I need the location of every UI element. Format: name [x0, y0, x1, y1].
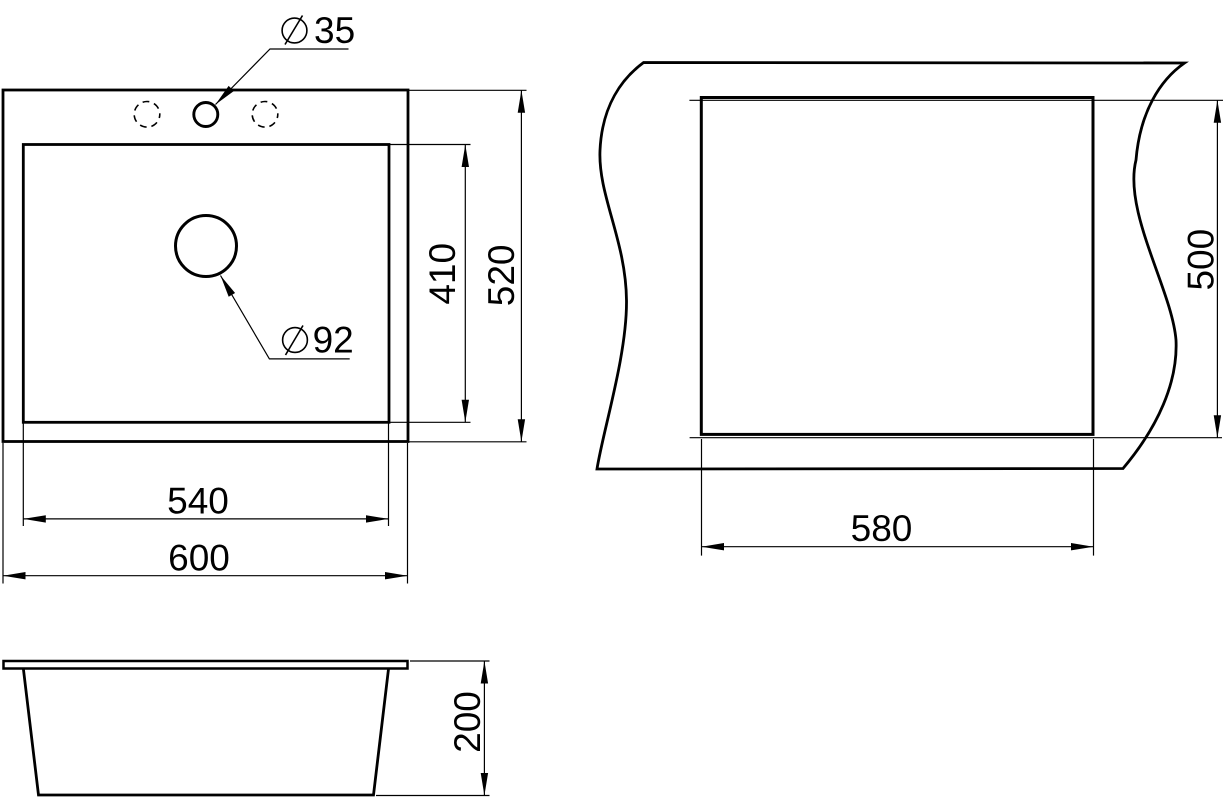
svg-text:35: 35: [314, 10, 355, 51]
svg-text:540: 540: [167, 481, 229, 522]
svg-text:92: 92: [313, 320, 354, 361]
svg-text:520: 520: [481, 245, 522, 307]
svg-text:580: 580: [851, 508, 913, 549]
svg-text:500: 500: [1181, 229, 1222, 291]
svg-text:600: 600: [168, 537, 230, 578]
svg-text:410: 410: [422, 243, 463, 305]
svg-text:200: 200: [447, 691, 488, 753]
